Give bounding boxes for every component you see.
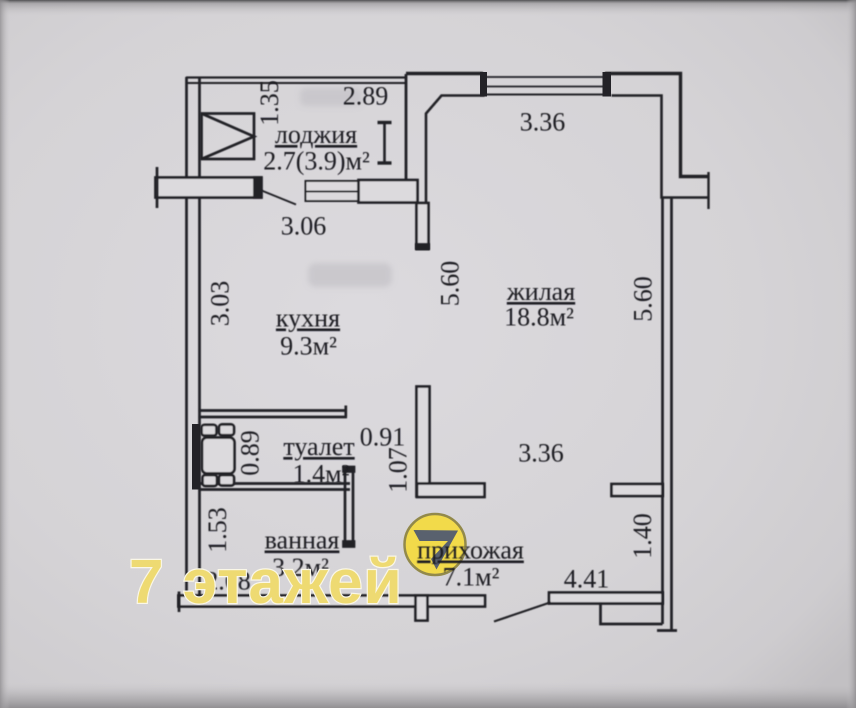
svg-text:2.89: 2.89 xyxy=(343,82,389,111)
svg-text:18.8м²: 18.8м² xyxy=(504,303,574,332)
svg-text:9.3м²: 9.3м² xyxy=(280,332,337,361)
svg-text:1.40: 1.40 xyxy=(628,513,657,559)
svg-text:3.03: 3.03 xyxy=(205,281,234,327)
svg-text:1.35: 1.35 xyxy=(255,80,284,126)
svg-text:туалет: туалет xyxy=(283,432,354,461)
svg-text:7 этажей: 7 этажей xyxy=(129,548,403,617)
svg-text:0.89: 0.89 xyxy=(235,430,264,476)
svg-text:1.53: 1.53 xyxy=(203,507,232,553)
svg-text:1.4м²: 1.4м² xyxy=(293,460,350,489)
svg-text:4.41: 4.41 xyxy=(564,565,610,594)
svg-text:5.60: 5.60 xyxy=(628,276,657,322)
svg-text:2.7(3.9)м²: 2.7(3.9)м² xyxy=(263,147,370,176)
svg-text:3.06: 3.06 xyxy=(281,212,327,241)
svg-text:лоджия: лоджия xyxy=(275,120,357,149)
svg-text:прихожая: прихожая xyxy=(417,536,524,565)
svg-text:0.91: 0.91 xyxy=(360,423,406,452)
svg-text:3.36: 3.36 xyxy=(518,439,564,468)
svg-text:5.60: 5.60 xyxy=(435,261,464,307)
svg-text:кухня: кухня xyxy=(276,304,340,333)
svg-text:1.07: 1.07 xyxy=(383,447,412,493)
svg-text:3.36: 3.36 xyxy=(520,108,566,137)
svg-text:7.1м²: 7.1м² xyxy=(443,563,500,592)
